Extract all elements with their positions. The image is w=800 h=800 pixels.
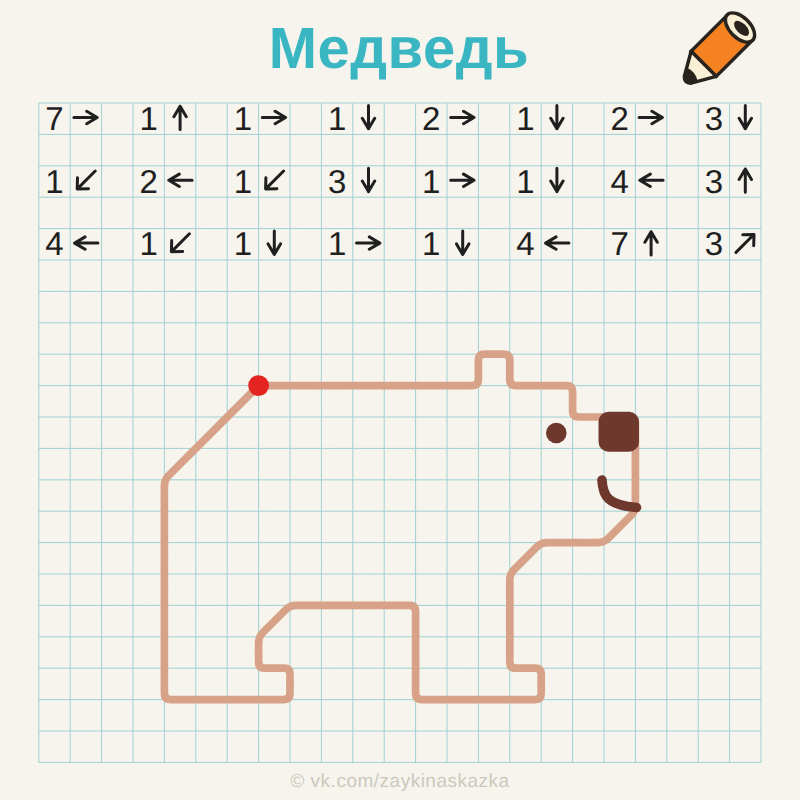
svg-text:2: 2 [422, 100, 440, 137]
svg-text:1: 1 [422, 163, 440, 200]
svg-text:1: 1 [328, 225, 346, 262]
svg-text:© vk.com/zaykinaskazka: © vk.com/zaykinaskazka [290, 771, 509, 792]
svg-text:1: 1 [516, 163, 534, 200]
svg-text:7: 7 [45, 100, 63, 137]
svg-text:1: 1 [516, 100, 534, 137]
svg-text:7: 7 [611, 225, 629, 262]
svg-text:1: 1 [328, 100, 346, 137]
svg-text:1: 1 [140, 100, 158, 137]
svg-text:1: 1 [140, 225, 158, 262]
svg-text:3: 3 [705, 225, 723, 262]
svg-text:4: 4 [516, 225, 534, 262]
svg-text:4: 4 [45, 225, 63, 262]
svg-text:1: 1 [45, 163, 63, 200]
svg-text:1: 1 [422, 225, 440, 262]
svg-text:Медведь: Медведь [269, 16, 530, 81]
svg-text:3: 3 [705, 100, 723, 137]
svg-text:4: 4 [611, 163, 629, 200]
svg-text:1: 1 [234, 100, 252, 137]
svg-text:2: 2 [611, 100, 629, 137]
svg-text:1: 1 [234, 163, 252, 200]
svg-text:3: 3 [705, 163, 723, 200]
svg-text:3: 3 [328, 163, 346, 200]
svg-text:1: 1 [234, 225, 252, 262]
svg-text:2: 2 [140, 163, 158, 200]
